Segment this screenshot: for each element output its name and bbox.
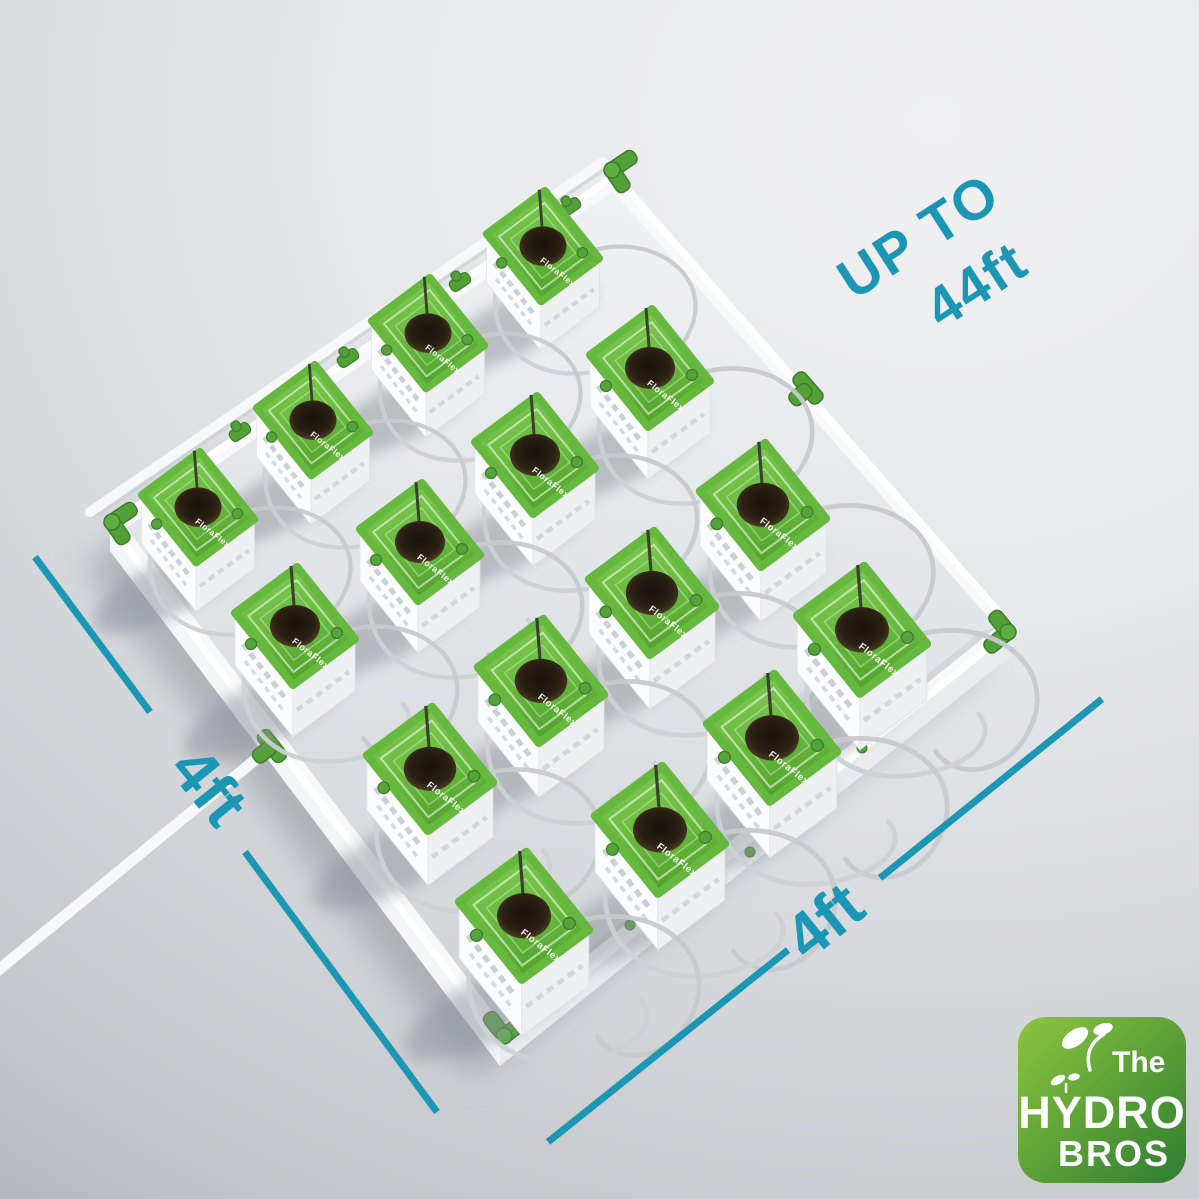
dripper-icon (699, 831, 711, 843)
dripper-icon (151, 519, 161, 529)
dripper-icon (371, 555, 382, 566)
dripper-icon (809, 643, 821, 655)
dripper-icon (901, 631, 913, 643)
dripper-icon (246, 639, 257, 650)
product-render: FloraFlex (0, 0, 1199, 1199)
cubes-layer: FloraFlex FloraFlex (82, 190, 1037, 1081)
dripper-icon (332, 628, 343, 639)
logo-word-hydro: HYDRO (1018, 1087, 1186, 1138)
dripper-icon (381, 345, 391, 355)
logo-word-bros: BROS (1058, 1133, 1170, 1174)
dripper-icon (489, 694, 501, 706)
dripper-icon (462, 335, 472, 345)
dripper-icon (579, 682, 591, 694)
dripper-icon (687, 370, 698, 381)
dripper-icon (471, 929, 483, 941)
dripper-icon (496, 258, 506, 268)
dripper-icon (711, 518, 723, 530)
hydro-bros-logo: The HYDRO BROS (1018, 1017, 1186, 1183)
dripper-icon (266, 432, 276, 442)
dripper-icon (486, 468, 497, 479)
dripper-icon (600, 606, 612, 618)
logo-word-the: The (1112, 1046, 1165, 1079)
dripper-icon (811, 739, 823, 751)
dripper-icon (719, 751, 731, 763)
dripper-icon (572, 457, 583, 468)
dripper-icon (457, 544, 468, 555)
dripper-icon (690, 594, 702, 606)
dripper-icon (801, 506, 813, 518)
dripper-icon (607, 843, 619, 855)
dripper-icon (378, 782, 390, 794)
dripper-icon (232, 509, 242, 519)
up-to-annotation: UP TO 44ft (826, 160, 1050, 371)
dripper-icon (347, 422, 357, 432)
dripper-icon (577, 248, 587, 258)
dripper-icon (601, 381, 612, 392)
dripper-icon (563, 917, 575, 929)
dripper-icon (468, 770, 480, 782)
